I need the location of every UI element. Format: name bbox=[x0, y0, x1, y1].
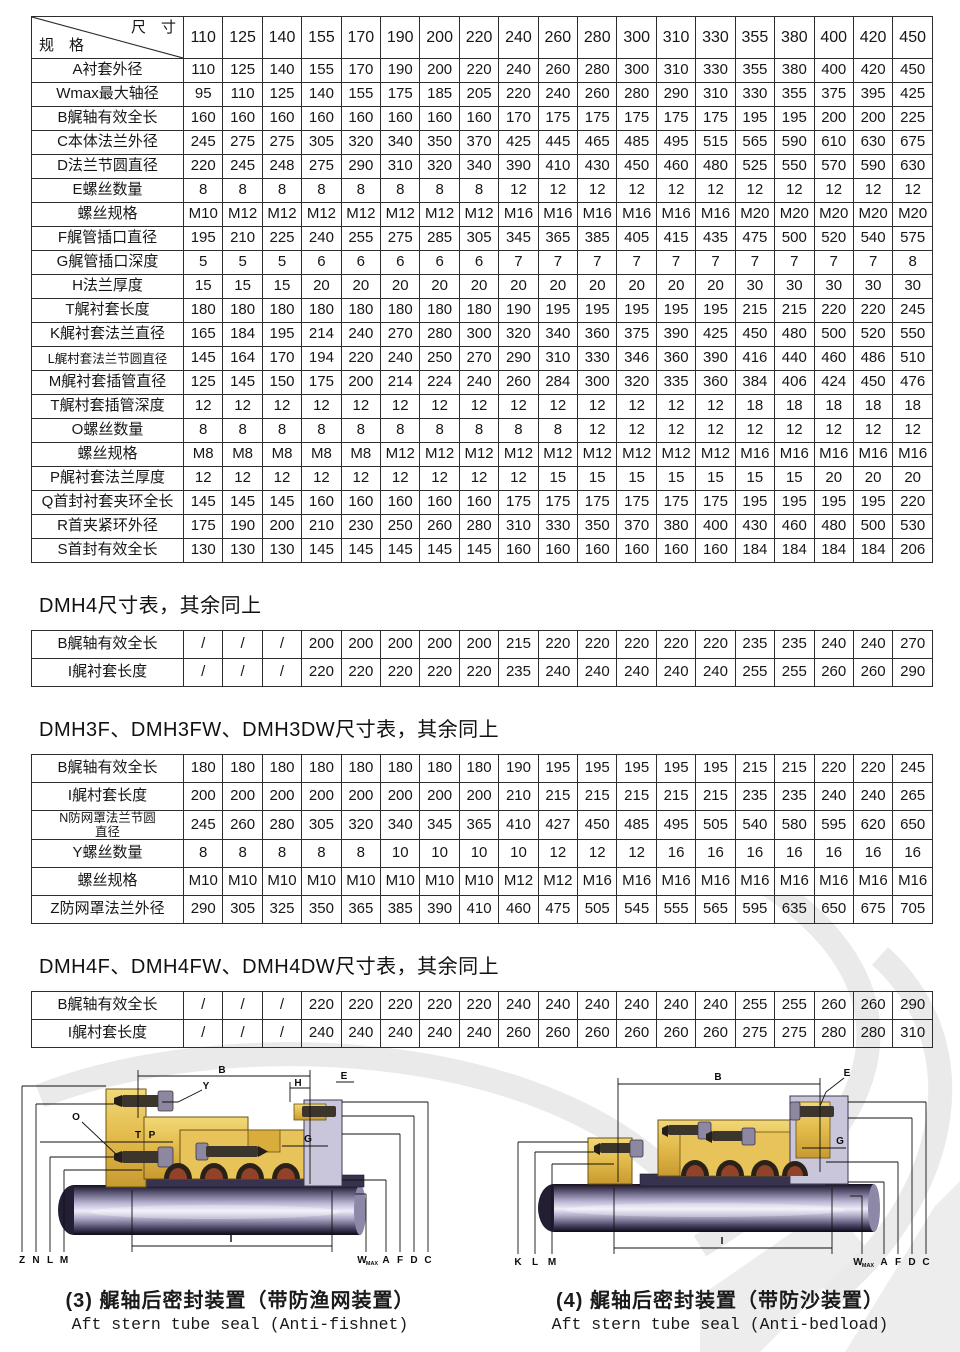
value-cell: 424 bbox=[814, 371, 853, 395]
value-cell: 360 bbox=[656, 347, 695, 371]
value-cell: 245 bbox=[223, 155, 262, 179]
value-cell: 220 bbox=[459, 992, 498, 1020]
row-label: I艉村套长度 bbox=[32, 783, 184, 811]
value-cell: 545 bbox=[617, 896, 656, 924]
value-cell: 200 bbox=[420, 631, 459, 659]
value-cell: 245 bbox=[184, 131, 223, 155]
value-cell: 195 bbox=[735, 107, 774, 131]
value-cell: 12 bbox=[262, 395, 301, 419]
dim-label-e: E bbox=[844, 1068, 851, 1079]
value-cell: 18 bbox=[893, 395, 933, 419]
value-cell: 210 bbox=[302, 515, 341, 539]
dim-label-wmax: MAX bbox=[862, 1263, 875, 1269]
value-cell: 340 bbox=[381, 811, 420, 840]
value-cell: 555 bbox=[656, 896, 695, 924]
value-cell: 220 bbox=[341, 659, 380, 687]
value-cell: 180 bbox=[262, 755, 301, 783]
value-cell: 12 bbox=[341, 395, 380, 419]
value-cell: 200 bbox=[420, 59, 459, 83]
value-cell: 15 bbox=[262, 275, 301, 299]
value-cell: 240 bbox=[696, 992, 735, 1020]
dim-label-l: L bbox=[532, 1257, 538, 1268]
value-cell: / bbox=[223, 1020, 262, 1048]
shaft bbox=[538, 1184, 880, 1232]
row-label: T艉村套插管深度 bbox=[32, 395, 184, 419]
value-cell: 305 bbox=[223, 896, 262, 924]
value-cell: 170 bbox=[262, 347, 301, 371]
value-cell: 6 bbox=[459, 251, 498, 275]
seal-housing bbox=[106, 1089, 364, 1187]
value-cell: 305 bbox=[459, 227, 498, 251]
table-row: Z防网罩法兰外径29030532535036538539041046047550… bbox=[32, 896, 933, 924]
value-cell: 30 bbox=[775, 275, 814, 299]
value-cell: 16 bbox=[814, 840, 853, 868]
value-cell: 195 bbox=[538, 299, 577, 323]
value-cell: 12 bbox=[656, 179, 695, 203]
value-cell: 355 bbox=[735, 59, 774, 83]
value-cell: 8 bbox=[341, 419, 380, 443]
value-cell: 12 bbox=[578, 840, 617, 868]
value-cell: 260 bbox=[814, 659, 853, 687]
size-col-header: 190 bbox=[381, 17, 420, 59]
value-cell: 8 bbox=[223, 840, 262, 868]
value-cell: M20 bbox=[775, 203, 814, 227]
value-cell: 240 bbox=[853, 783, 892, 811]
value-cell: 12 bbox=[381, 395, 420, 419]
value-cell: 260 bbox=[656, 1020, 695, 1048]
size-col-header: 220 bbox=[459, 17, 498, 59]
value-cell: 260 bbox=[578, 1020, 617, 1048]
value-cell: 195 bbox=[775, 491, 814, 515]
value-cell: 180 bbox=[459, 755, 498, 783]
corner-cell: 尺 寸规 格 bbox=[32, 17, 184, 59]
value-cell: M12 bbox=[617, 443, 656, 467]
value-cell: 7 bbox=[499, 251, 538, 275]
value-cell: 7 bbox=[814, 251, 853, 275]
main-table-section: 尺 寸规 格1101251401551701902002202402602803… bbox=[0, 16, 960, 563]
value-cell: 145 bbox=[420, 539, 459, 563]
value-cell: 460 bbox=[499, 896, 538, 924]
value-cell: M16 bbox=[696, 203, 735, 227]
value-cell: 170 bbox=[499, 107, 538, 131]
value-cell: M16 bbox=[893, 443, 933, 467]
row-label: B艉轴有效全长 bbox=[32, 631, 184, 659]
value-cell: 160 bbox=[341, 107, 380, 131]
value-cell: 12 bbox=[578, 419, 617, 443]
value-cell: 12 bbox=[696, 395, 735, 419]
value-cell: 8 bbox=[302, 419, 341, 443]
value-cell: 175 bbox=[538, 107, 577, 131]
value-cell: 160 bbox=[223, 107, 262, 131]
value-cell: 175 bbox=[617, 107, 656, 131]
value-cell: 195 bbox=[578, 299, 617, 323]
value-cell: 200 bbox=[302, 631, 341, 659]
value-cell: 255 bbox=[341, 227, 380, 251]
size-col-header: 140 bbox=[262, 17, 301, 59]
value-cell: 8 bbox=[420, 179, 459, 203]
value-cell: M12 bbox=[499, 443, 538, 467]
value-cell: 290 bbox=[656, 83, 695, 107]
seal-housing bbox=[588, 1096, 848, 1186]
value-cell: 290 bbox=[499, 347, 538, 371]
value-cell: 7 bbox=[538, 251, 577, 275]
value-cell: 160 bbox=[499, 539, 538, 563]
value-cell: 180 bbox=[184, 299, 223, 323]
value-cell: 12 bbox=[853, 419, 892, 443]
value-cell: 330 bbox=[538, 515, 577, 539]
row-label: M艉衬套插管直径 bbox=[32, 371, 184, 395]
value-cell: 280 bbox=[262, 811, 301, 840]
value-cell: 194 bbox=[302, 347, 341, 371]
value-cell: M8 bbox=[341, 443, 380, 467]
dmh3f-dimension-table: B艉轴有效全长180180180180180180180180190195195… bbox=[31, 754, 933, 924]
value-cell: 184 bbox=[223, 323, 262, 347]
value-cell: M16 bbox=[696, 868, 735, 896]
value-cell: M16 bbox=[775, 868, 814, 896]
value-cell: 610 bbox=[814, 131, 853, 155]
corner-top-label: 尺 寸 bbox=[131, 20, 176, 37]
row-label: K艉衬套法兰直径 bbox=[32, 323, 184, 347]
value-cell: 305 bbox=[302, 131, 341, 155]
value-cell: 235 bbox=[499, 659, 538, 687]
value-cell: 240 bbox=[617, 659, 656, 687]
value-cell: 620 bbox=[853, 811, 892, 840]
value-cell: 184 bbox=[735, 539, 774, 563]
value-cell: 20 bbox=[459, 275, 498, 299]
value-cell: 310 bbox=[381, 155, 420, 179]
value-cell: 595 bbox=[735, 896, 774, 924]
figure4-caption-zh: (4) 艉轴后密封装置（带防沙装置） bbox=[480, 1284, 960, 1313]
dim-label-g: G bbox=[836, 1136, 844, 1147]
value-cell: 290 bbox=[341, 155, 380, 179]
value-cell: 240 bbox=[341, 323, 380, 347]
value-cell: 200 bbox=[341, 371, 380, 395]
table-row: K艉衬套法兰直径16518419521424027028030032034036… bbox=[32, 323, 933, 347]
table-row: F艉管插口直径195210225240255275285305345365385… bbox=[32, 227, 933, 251]
value-cell: 160 bbox=[656, 539, 695, 563]
table-row: R首夹紧环外径175190200210230250260280310330350… bbox=[32, 515, 933, 539]
value-cell: 435 bbox=[696, 227, 735, 251]
value-cell: 230 bbox=[341, 515, 380, 539]
value-cell: 18 bbox=[775, 395, 814, 419]
value-cell: 200 bbox=[381, 783, 420, 811]
value-cell: 290 bbox=[893, 992, 933, 1020]
value-cell: 325 bbox=[262, 896, 301, 924]
value-cell: 275 bbox=[381, 227, 420, 251]
value-cell: 215 bbox=[775, 299, 814, 323]
value-cell: 240 bbox=[538, 992, 577, 1020]
value-cell: 290 bbox=[184, 896, 223, 924]
value-cell: 175 bbox=[184, 515, 223, 539]
row-label: I艉村套长度 bbox=[32, 1020, 184, 1048]
value-cell: 190 bbox=[499, 755, 538, 783]
value-cell: 200 bbox=[341, 631, 380, 659]
value-cell: 20 bbox=[578, 275, 617, 299]
table-row: E螺丝数量888888881212121212121212121212 bbox=[32, 179, 933, 203]
value-cell: 450 bbox=[893, 59, 933, 83]
value-cell: 145 bbox=[223, 491, 262, 515]
table-row: A衬套外径11012514015517019020022024026028030… bbox=[32, 59, 933, 83]
value-cell: 18 bbox=[853, 395, 892, 419]
value-cell: 180 bbox=[381, 755, 420, 783]
value-cell: 500 bbox=[775, 227, 814, 251]
table-row: O螺丝数量8888888888121212121212121212 bbox=[32, 419, 933, 443]
value-cell: 200 bbox=[814, 107, 853, 131]
value-cell: 430 bbox=[735, 515, 774, 539]
value-cell: 12 bbox=[459, 467, 498, 491]
row-label: C本体法兰外径 bbox=[32, 131, 184, 155]
value-cell: M10 bbox=[302, 868, 341, 896]
value-cell: 12 bbox=[893, 179, 933, 203]
value-cell: 220 bbox=[381, 659, 420, 687]
value-cell: 12 bbox=[538, 840, 577, 868]
value-cell: 15 bbox=[617, 467, 656, 491]
value-cell: 165 bbox=[184, 323, 223, 347]
value-cell: 195 bbox=[814, 491, 853, 515]
dim-label-f: F bbox=[397, 1255, 403, 1266]
value-cell: / bbox=[262, 659, 301, 687]
value-cell: 505 bbox=[696, 811, 735, 840]
value-cell: 12 bbox=[223, 395, 262, 419]
dim-label-o: O bbox=[72, 1112, 80, 1123]
dim-label-h: H bbox=[294, 1078, 301, 1089]
dim-label-i: I bbox=[230, 1234, 233, 1245]
value-cell: 10 bbox=[420, 840, 459, 868]
value-cell: 235 bbox=[735, 631, 774, 659]
value-cell: 15 bbox=[578, 467, 617, 491]
dim-label-k: K bbox=[514, 1257, 522, 1268]
dim-label-z: Z bbox=[19, 1255, 25, 1266]
value-cell: 7 bbox=[656, 251, 695, 275]
value-cell: / bbox=[184, 992, 223, 1020]
value-cell: 6 bbox=[420, 251, 459, 275]
value-cell: 175 bbox=[617, 491, 656, 515]
value-cell: 500 bbox=[814, 323, 853, 347]
value-cell: 220 bbox=[814, 755, 853, 783]
table-row: T艉村套插管深度12121212121212121212121212121818… bbox=[32, 395, 933, 419]
dim-label-b: B bbox=[218, 1065, 225, 1076]
value-cell: 145 bbox=[459, 539, 498, 563]
value-cell: 214 bbox=[381, 371, 420, 395]
value-cell: 635 bbox=[775, 896, 814, 924]
value-cell: 240 bbox=[302, 1020, 341, 1048]
value-cell: 215 bbox=[499, 631, 538, 659]
value-cell: 335 bbox=[656, 371, 695, 395]
value-cell: 450 bbox=[853, 371, 892, 395]
value-cell: 480 bbox=[814, 515, 853, 539]
value-cell: M12 bbox=[420, 203, 459, 227]
value-cell: 400 bbox=[814, 59, 853, 83]
value-cell: 6 bbox=[381, 251, 420, 275]
value-cell: 12 bbox=[853, 179, 892, 203]
value-cell: 145 bbox=[184, 491, 223, 515]
anti-fishnet-drawing: B Y H E O T P G Z N L M I W MAX A F bbox=[10, 1062, 470, 1280]
value-cell: 12 bbox=[696, 419, 735, 443]
row-label: R首夹紧环外径 bbox=[32, 515, 184, 539]
value-cell: M8 bbox=[223, 443, 262, 467]
value-cell: 240 bbox=[617, 992, 656, 1020]
value-cell: 16 bbox=[775, 840, 814, 868]
value-cell: M16 bbox=[893, 868, 933, 896]
value-cell: 515 bbox=[696, 131, 735, 155]
value-cell: 240 bbox=[459, 1020, 498, 1048]
value-cell: 240 bbox=[814, 783, 853, 811]
value-cell: 595 bbox=[814, 811, 853, 840]
value-cell: 380 bbox=[775, 59, 814, 83]
size-col-header: 400 bbox=[814, 17, 853, 59]
table-row: L艉村套法兰节圆直径145164170194220240250270290310… bbox=[32, 347, 933, 371]
value-cell: 200 bbox=[459, 783, 498, 811]
value-cell: 380 bbox=[656, 515, 695, 539]
value-cell: 400 bbox=[696, 515, 735, 539]
value-cell: 200 bbox=[223, 783, 262, 811]
dim-label-d: D bbox=[908, 1257, 915, 1268]
row-label: 螺丝规格 bbox=[32, 443, 184, 467]
table-row: C本体法兰外径245275275305320340350370425445465… bbox=[32, 131, 933, 155]
value-cell: M16 bbox=[853, 868, 892, 896]
value-cell: M8 bbox=[184, 443, 223, 467]
value-cell: 255 bbox=[735, 992, 774, 1020]
value-cell: 160 bbox=[381, 107, 420, 131]
value-cell: 355 bbox=[775, 83, 814, 107]
value-cell: 20 bbox=[381, 275, 420, 299]
value-cell: 300 bbox=[578, 371, 617, 395]
value-cell: / bbox=[223, 631, 262, 659]
value-cell: 160 bbox=[381, 491, 420, 515]
value-cell: 8 bbox=[223, 179, 262, 203]
value-cell: 495 bbox=[656, 811, 695, 840]
value-cell: 520 bbox=[853, 323, 892, 347]
value-cell: 155 bbox=[341, 83, 380, 107]
value-cell: 12 bbox=[735, 179, 774, 203]
row-label: E螺丝数量 bbox=[32, 179, 184, 203]
value-cell: 630 bbox=[893, 155, 933, 179]
value-cell: 300 bbox=[459, 323, 498, 347]
value-cell: 575 bbox=[893, 227, 933, 251]
table-row: B艉轴有效全长///200200200200200215220220220220… bbox=[32, 631, 933, 659]
value-cell: 240 bbox=[499, 992, 538, 1020]
dmh4f-table-section: B艉轴有效全长///220220220220220240240240240240… bbox=[0, 991, 960, 1048]
value-cell: 195 bbox=[262, 323, 301, 347]
value-cell: 580 bbox=[775, 811, 814, 840]
value-cell: 240 bbox=[538, 83, 577, 107]
value-cell: 200 bbox=[262, 515, 301, 539]
value-cell: 406 bbox=[775, 371, 814, 395]
value-cell: 20 bbox=[696, 275, 735, 299]
value-cell: 384 bbox=[735, 371, 774, 395]
value-cell: 155 bbox=[302, 59, 341, 83]
row-label: 螺丝规格 bbox=[32, 868, 184, 896]
size-col-header: 300 bbox=[617, 17, 656, 59]
value-cell: 245 bbox=[893, 755, 933, 783]
value-cell: 320 bbox=[341, 131, 380, 155]
value-cell: 565 bbox=[696, 896, 735, 924]
value-cell: 125 bbox=[223, 59, 262, 83]
value-cell: 210 bbox=[499, 783, 538, 811]
table-row: G艉管插口深度5556666677777777778 bbox=[32, 251, 933, 275]
value-cell: 525 bbox=[735, 155, 774, 179]
value-cell: 365 bbox=[459, 811, 498, 840]
dim-label-i: I bbox=[721, 1236, 724, 1247]
value-cell: 275 bbox=[735, 1020, 774, 1048]
value-cell: M12 bbox=[499, 868, 538, 896]
value-cell: 20 bbox=[302, 275, 341, 299]
value-cell: 215 bbox=[656, 783, 695, 811]
row-label: Q首封衬套夹环全长 bbox=[32, 491, 184, 515]
value-cell: / bbox=[223, 659, 262, 687]
row-label: Y螺丝数量 bbox=[32, 840, 184, 868]
dim-label-t: T bbox=[135, 1130, 141, 1141]
value-cell: 190 bbox=[223, 515, 262, 539]
shaft bbox=[58, 1185, 366, 1235]
value-cell: 160 bbox=[262, 107, 301, 131]
value-cell: 480 bbox=[696, 155, 735, 179]
value-cell: 255 bbox=[735, 659, 774, 687]
row-label: S首封有效全长 bbox=[32, 539, 184, 563]
value-cell: 12 bbox=[656, 395, 695, 419]
value-cell: 6 bbox=[341, 251, 380, 275]
value-cell: 145 bbox=[262, 491, 301, 515]
value-cell: 270 bbox=[459, 347, 498, 371]
size-col-header: 200 bbox=[420, 17, 459, 59]
value-cell: 630 bbox=[853, 131, 892, 155]
value-cell: 495 bbox=[656, 131, 695, 155]
value-cell: M16 bbox=[735, 868, 774, 896]
value-cell: 145 bbox=[341, 539, 380, 563]
value-cell: / bbox=[184, 631, 223, 659]
value-cell: 16 bbox=[696, 840, 735, 868]
value-cell: M8 bbox=[262, 443, 301, 467]
value-cell: 12 bbox=[184, 467, 223, 491]
value-cell: 8 bbox=[223, 419, 262, 443]
dmh4-section-title: DMH4尺寸表，其余同上 bbox=[39, 589, 960, 618]
table-row: B艉轴有效全长///220220220220220240240240240240… bbox=[32, 992, 933, 1020]
size-col-header: 155 bbox=[302, 17, 341, 59]
dim-label-n: N bbox=[32, 1255, 39, 1266]
value-cell: 245 bbox=[184, 811, 223, 840]
value-cell: 350 bbox=[578, 515, 617, 539]
value-cell: 260 bbox=[499, 371, 538, 395]
value-cell: 12 bbox=[656, 419, 695, 443]
value-cell: 240 bbox=[381, 347, 420, 371]
size-col-header: 170 bbox=[341, 17, 380, 59]
value-cell: M10 bbox=[420, 868, 459, 896]
value-cell: 330 bbox=[578, 347, 617, 371]
dim-label-b: B bbox=[714, 1072, 721, 1083]
value-cell: M8 bbox=[302, 443, 341, 467]
size-col-header: 110 bbox=[184, 17, 223, 59]
value-cell: 20 bbox=[814, 467, 853, 491]
row-label: D法兰节圆直径 bbox=[32, 155, 184, 179]
value-cell: / bbox=[223, 992, 262, 1020]
value-cell: 215 bbox=[538, 783, 577, 811]
value-cell: 200 bbox=[184, 783, 223, 811]
value-cell: 12 bbox=[893, 419, 933, 443]
value-cell: 310 bbox=[656, 59, 695, 83]
value-cell: M12 bbox=[341, 203, 380, 227]
value-cell: 675 bbox=[853, 896, 892, 924]
dim-label-f: F bbox=[895, 1257, 901, 1268]
row-label: 螺丝规格 bbox=[32, 203, 184, 227]
table-row: 螺丝规格M10M10M10M10M10M10M10M10M12M12M16M16… bbox=[32, 868, 933, 896]
value-cell: 280 bbox=[420, 323, 459, 347]
value-cell: 12 bbox=[735, 419, 774, 443]
value-cell: 340 bbox=[538, 323, 577, 347]
value-cell: 224 bbox=[420, 371, 459, 395]
figure-anti-fishnet: B Y H E O T P G Z N L M I W MAX A F bbox=[0, 1062, 480, 1334]
value-cell: 255 bbox=[775, 659, 814, 687]
value-cell: 225 bbox=[893, 107, 933, 131]
